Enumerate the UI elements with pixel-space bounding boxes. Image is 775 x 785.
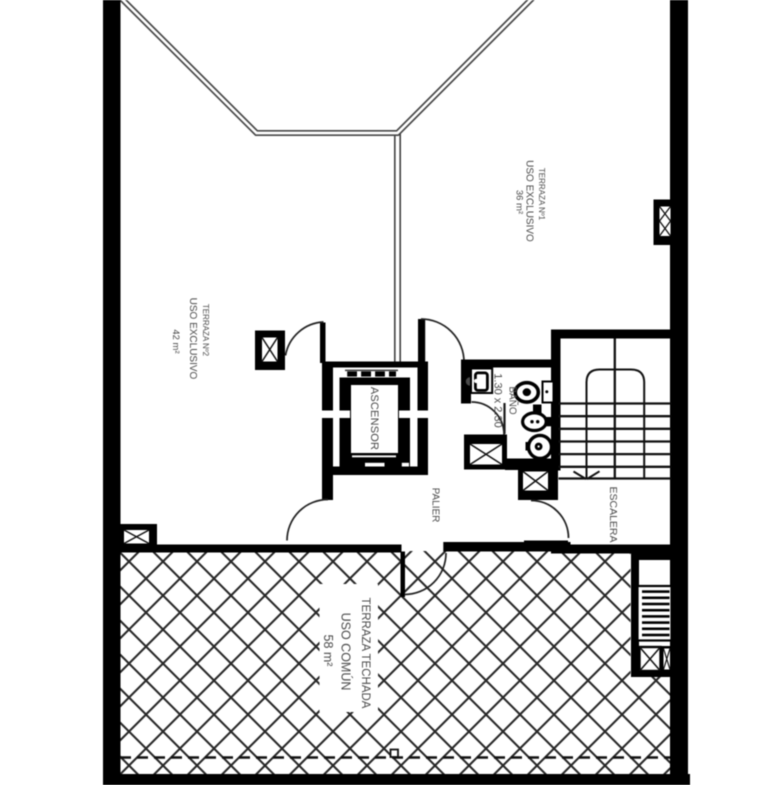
svg-text:USO COMÚN: USO COMÚN xyxy=(338,613,353,691)
svg-text:TERRAZA Nº1: TERRAZA Nº1 xyxy=(537,168,546,221)
svg-text:USO EXCLUSIVO: USO EXCLUSIVO xyxy=(187,298,198,380)
svg-text:BAÑO: BAÑO xyxy=(507,386,520,415)
svg-text:ESCALERA: ESCALERA xyxy=(607,486,619,542)
svg-text:42 m²: 42 m² xyxy=(170,329,181,353)
svg-text:36 m²: 36 m² xyxy=(514,190,525,214)
svg-text:TERRAZA TECHADA: TERRAZA TECHADA xyxy=(359,598,371,709)
svg-text:1.30 x 2.30: 1.30 x 2.30 xyxy=(492,373,504,427)
svg-text:PALIER: PALIER xyxy=(430,488,441,523)
svg-text:ASCENSOR: ASCENSOR xyxy=(368,387,380,450)
svg-text:TERRAZA Nº2: TERRAZA Nº2 xyxy=(201,304,210,357)
svg-text:58 m²: 58 m² xyxy=(321,635,335,667)
